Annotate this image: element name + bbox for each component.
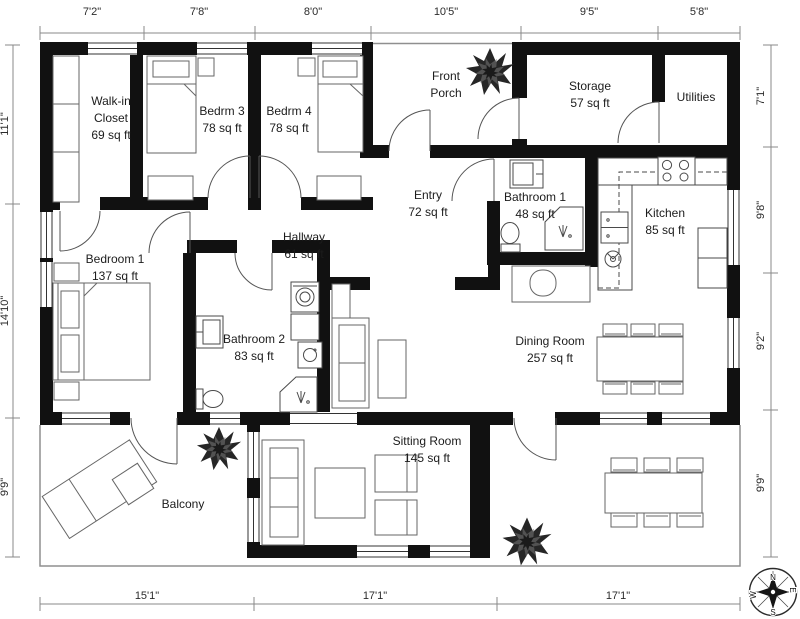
nightstand: [54, 382, 79, 400]
potted-plant-icon: [503, 518, 552, 566]
compass-north-label: N: [770, 573, 776, 582]
room-label-walk-in-closet: Walk-in Closet 69 sq ft: [91, 94, 131, 142]
desk-chair: [530, 270, 556, 296]
dim-top-3: 8'0": [304, 6, 322, 18]
dim-right-3: 9'2": [755, 332, 767, 350]
dim-bottom-2: 17'1": [363, 590, 387, 602]
side-table: [378, 340, 406, 398]
room-label-entry: Entry 72 sq ft: [408, 188, 448, 219]
dim-left-3: 9'9": [0, 478, 11, 496]
svg-text:48 sq ft: 48 sq ft: [515, 207, 555, 221]
nightstand: [198, 58, 214, 76]
room-label-storage: Storage 57 sq ft: [569, 79, 611, 110]
svg-text:78 sq ft: 78 sq ft: [202, 121, 242, 135]
corner-shower: [280, 377, 317, 412]
floor-plan-page: 7'2" 7'8" 8'0" 10'5" 9'5" 5'8" 15'1" 17'…: [0, 0, 800, 619]
svg-text:Bedroom 1: Bedroom 1: [86, 252, 145, 266]
balcony-furniture: [42, 440, 156, 539]
svg-text:57 sq ft: 57 sq ft: [570, 96, 610, 110]
dresser: [317, 176, 361, 200]
patio-furniture: [605, 458, 703, 527]
dim-bottom-1: 15'1": [135, 590, 159, 602]
potted-plant-icon: [466, 48, 514, 95]
dining-table: [597, 337, 683, 381]
toilet-tank: [501, 244, 520, 252]
dim-right-4: 9'9": [755, 474, 767, 492]
dim-top-6: 5'8": [690, 6, 708, 18]
pillow: [61, 335, 79, 372]
dim-top-4: 10'5": [434, 6, 458, 18]
svg-text:Dining Room: Dining Room: [515, 334, 584, 348]
svg-text:Utilities: Utilities: [677, 90, 716, 104]
svg-text:145 sq ft: 145 sq ft: [404, 451, 451, 465]
svg-text:83 sq ft: 83 sq ft: [234, 349, 274, 363]
dim-top-5: 9'5": [580, 6, 598, 18]
svg-text:Bathroom 2: Bathroom 2: [223, 332, 285, 346]
room-label-bedrm-3: Bedrm 3 78 sq ft: [199, 104, 245, 135]
room-label-bedroom-1: Bedroom 1 137 sq ft: [86, 252, 145, 283]
coffee-table: [315, 468, 365, 518]
room-label-bathroom-2: Bathroom 2 83 sq ft: [223, 332, 285, 363]
sink: [298, 342, 322, 368]
svg-text:Closet: Closet: [94, 111, 129, 125]
bathroom1-fixtures: [501, 160, 583, 252]
nightstand: [298, 58, 315, 76]
bathroom2-fixtures: [196, 282, 322, 412]
dresser: [148, 176, 193, 200]
dim-left-1: 11'1": [0, 112, 11, 136]
patio-table: [605, 473, 702, 513]
svg-text:Walk-in: Walk-in: [91, 94, 131, 108]
walk-in-closet-shelves: [53, 56, 79, 202]
room-label-bedrm-4: Bedrm 4 78 sq ft: [266, 104, 312, 135]
dim-bottom-3: 17'1": [606, 590, 630, 602]
room-label-dining-room: Dining Room 257 sq ft: [515, 334, 584, 365]
dim-top-1: 7'2": [83, 6, 101, 18]
room-label-balcony: Balcony: [162, 497, 205, 511]
compass-west-label: W: [749, 591, 758, 599]
svg-text:Kitchen: Kitchen: [645, 206, 685, 220]
dim-right-2: 9'8": [755, 201, 767, 219]
svg-text:Entry: Entry: [414, 188, 442, 202]
svg-text:Bathroom 1: Bathroom 1: [504, 190, 566, 204]
svg-text:Balcony: Balcony: [162, 497, 205, 511]
svg-text:78 sq ft: 78 sq ft: [269, 121, 309, 135]
svg-text:Hallway: Hallway: [283, 230, 325, 244]
toilet-tank: [196, 389, 203, 409]
potted-plant-icon: [197, 427, 241, 470]
sitting-room-furniture: [262, 440, 417, 545]
pillow: [61, 291, 79, 328]
dim-right-1: 7'1": [755, 87, 767, 105]
room-label-front-porch: Front Porch: [430, 69, 461, 100]
room-label-kitchen: Kitchen 85 sq ft: [645, 206, 685, 237]
svg-text:137 sq ft: 137 sq ft: [92, 269, 139, 283]
svg-text:Bedrm 4: Bedrm 4: [266, 104, 312, 118]
toilet-bowl: [203, 391, 223, 408]
pillow: [153, 61, 189, 77]
nightstand: [54, 263, 79, 281]
compass-south-label: S: [770, 608, 775, 617]
svg-text:Porch: Porch: [430, 86, 461, 100]
svg-text:Front: Front: [432, 69, 461, 83]
compass-east-label: E: [788, 587, 797, 592]
dim-top-2: 7'8": [190, 6, 208, 18]
floor-plan-canvas: 7'2" 7'8" 8'0" 10'5" 9'5" 5'8" 15'1" 17'…: [0, 0, 800, 619]
armchair: [375, 500, 417, 535]
bedroom1-furniture: [53, 263, 150, 400]
toilet-bowl: [501, 223, 519, 244]
room-label-utilities: Utilities: [677, 90, 716, 104]
svg-text:69 sq ft: 69 sq ft: [91, 128, 131, 142]
svg-text:61 sq ft: 61 sq ft: [284, 247, 324, 261]
bathroom-counter: [291, 314, 319, 340]
svg-text:257 sq ft: 257 sq ft: [527, 351, 574, 365]
svg-text:72 sq ft: 72 sq ft: [408, 205, 448, 219]
pillow: [323, 61, 357, 77]
stove: [658, 157, 695, 185]
svg-text:Storage: Storage: [569, 79, 611, 93]
svg-text:85 sq ft: 85 sq ft: [645, 223, 685, 237]
svg-text:Sitting Room: Sitting Room: [393, 434, 462, 448]
dim-left-2: 14'10": [0, 296, 11, 327]
compass-rose-icon: N S W E: [749, 569, 797, 618]
svg-text:Bedrm 3: Bedrm 3: [199, 104, 245, 118]
